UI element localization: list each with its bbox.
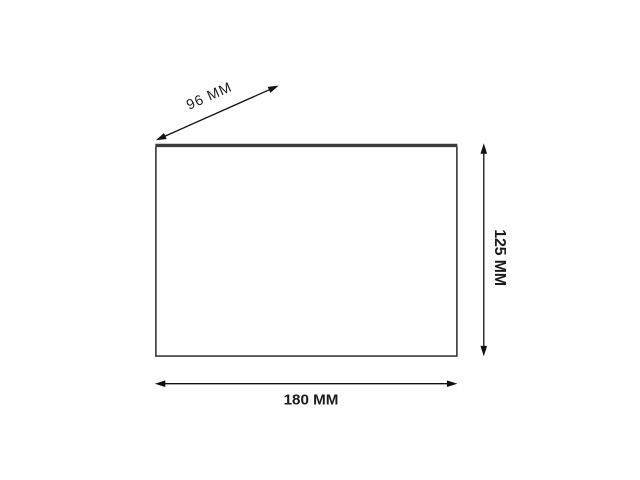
svg-text:180 MM: 180 MM bbox=[284, 391, 339, 408]
svg-text:125 MM: 125 MM bbox=[491, 229, 508, 286]
